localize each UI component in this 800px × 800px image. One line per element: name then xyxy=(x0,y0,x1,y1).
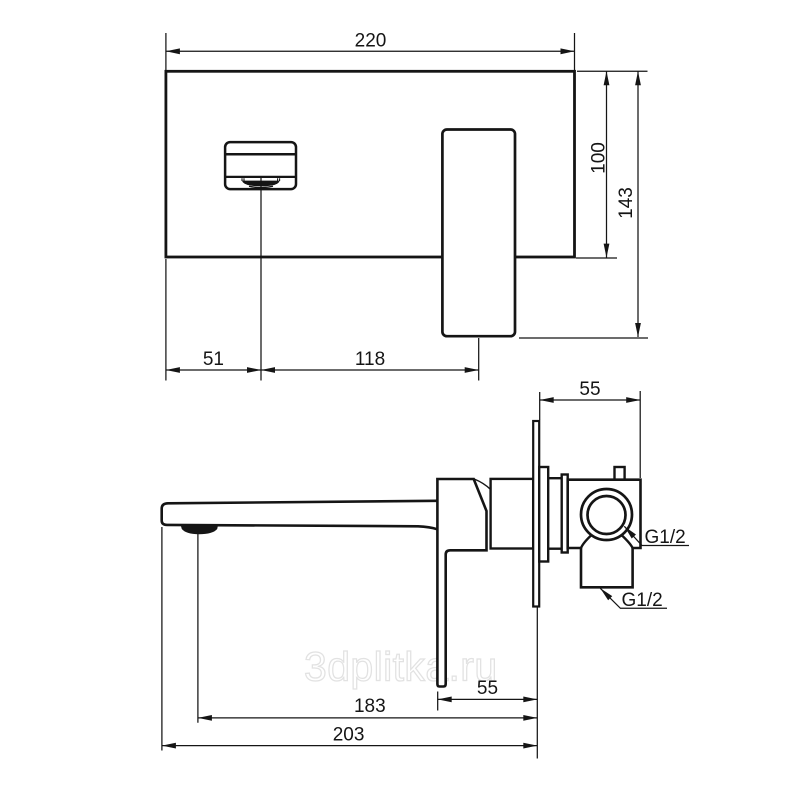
svg-text:55: 55 xyxy=(579,379,600,400)
svg-text:G1/2: G1/2 xyxy=(645,527,686,548)
svg-text:3dplitka.ru: 3dplitka.ru xyxy=(304,644,498,690)
svg-text:220: 220 xyxy=(355,31,387,52)
svg-text:51: 51 xyxy=(203,349,224,370)
svg-text:143: 143 xyxy=(616,187,637,219)
svg-text:55: 55 xyxy=(477,678,498,699)
svg-text:203: 203 xyxy=(333,725,365,746)
svg-text:G1/2: G1/2 xyxy=(622,590,663,611)
svg-text:100: 100 xyxy=(589,142,610,174)
svg-text:183: 183 xyxy=(354,696,386,717)
svg-text:118: 118 xyxy=(355,349,385,370)
